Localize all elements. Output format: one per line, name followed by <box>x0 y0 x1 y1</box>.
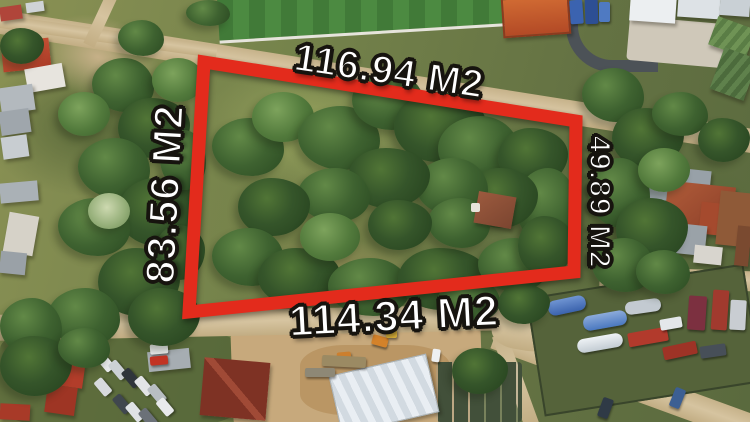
measurement-label-left: 83.56 M2 <box>137 103 193 284</box>
aerial-photo: 116.94 M2 83.56 M2 49.89 M2 114.34 M2 <box>0 0 750 422</box>
measurement-label-right: 49.89 M2 <box>582 135 616 268</box>
plot-boundary <box>189 62 576 312</box>
